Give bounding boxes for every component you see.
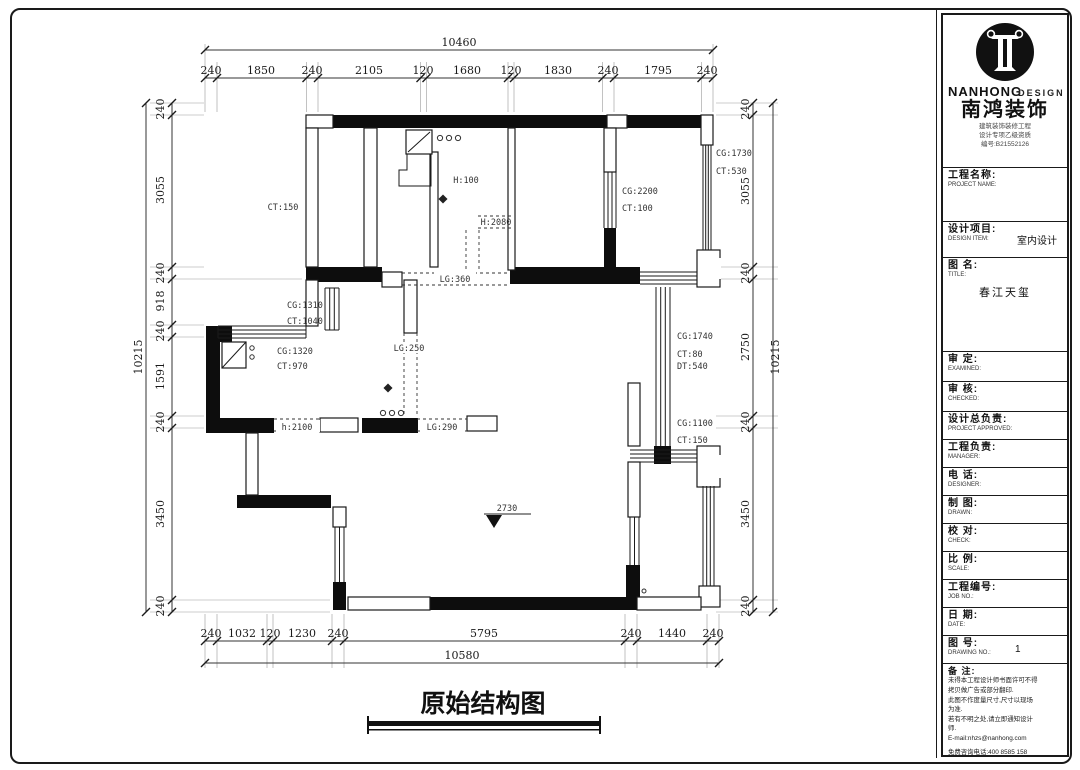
field-checked: 审 核: CHECKED: [943, 381, 1067, 411]
dim-left-seg: 3055 [154, 176, 167, 204]
dim-top-seg: 1830 [544, 64, 572, 77]
dim-right-seg: 240 [739, 596, 752, 617]
dims-left: 10215 240 3055 240 918 240 1591 240 3450… [132, 99, 167, 617]
dim-bottom-seg: 240 [201, 627, 222, 640]
dim-bottom-total: 10580 [445, 649, 480, 662]
dim-right-seg: 240 [739, 412, 752, 433]
dim-left-seg: 240 [154, 412, 167, 433]
label-lg360: LG:360 [440, 275, 471, 285]
drawing-sheet: 10460 240 1850 240 2105 120 1680 120 183… [0, 0, 1080, 770]
title-underline-thick [368, 721, 600, 726]
title-block: NANHONGDESIGN 南鸿装饰 建筑装饰装修工程 设计专项乙级资质 编号:… [941, 13, 1069, 757]
level-value: 2730 [497, 504, 517, 514]
map-title-value: 春江天玺 [943, 284, 1067, 300]
label-cg2200: CG:2200 [622, 187, 658, 197]
nanhong-logo-icon [974, 21, 1036, 83]
notes-line: 师. [948, 724, 1062, 734]
dim-top-seg: 120 [413, 64, 434, 77]
field-scale: 比 例: SCALE: [943, 551, 1067, 579]
field-label: 比 例: [948, 554, 1062, 566]
notes-line: 未得本工程设计师书面许可不得 [948, 676, 1062, 686]
field-sublabel: PROJECT APPROVED: [948, 426, 1062, 433]
field-label: 电 话: [948, 470, 1062, 482]
dim-left-seg: 1591 [154, 362, 167, 390]
dim-left-seg: 918 [154, 291, 167, 312]
dim-top-seg: 240 [697, 64, 718, 77]
dim-top-seg: 120 [501, 64, 522, 77]
dim-top-total: 10460 [442, 36, 477, 49]
dim-left-seg: 240 [154, 321, 167, 342]
cert-line-3: 编号:B21552126 [948, 141, 1062, 150]
notes-phone: 免费咨询电话:400 8585 158 [948, 748, 1062, 758]
drawing-title: 原始结构图 [420, 690, 545, 718]
label-ct1040: CT:1040 [287, 317, 323, 327]
notes-line: 拷贝做广告或部分翻印. [948, 686, 1062, 696]
dim-top-seg: 1795 [644, 64, 672, 77]
label-cg1100: CG:1100 [677, 419, 713, 429]
field-drawn: 制 图: DRAWN: [943, 495, 1067, 523]
dim-right-seg: 3055 [739, 177, 752, 205]
dim-bottom-seg: 120 [260, 627, 281, 640]
field-label: 设计总负责: [948, 414, 1062, 426]
label-h2080: H:2080 [481, 218, 512, 228]
field-label: 图 名: [948, 260, 1062, 272]
notes-line: 为准. [948, 705, 1062, 715]
cert-line-2: 设计专项乙级资质 [948, 132, 1062, 141]
label-lg250: LG:250 [394, 344, 425, 354]
label-cg1320: CG:1320 [277, 347, 313, 357]
dim-left-total: 10215 [132, 340, 145, 375]
dim-top-seg: 240 [201, 64, 222, 77]
dim-top-seg: 1680 [453, 64, 481, 77]
field-label: 制 图: [948, 498, 1062, 510]
dim-right-seg: 3450 [739, 500, 752, 528]
brand-en: NANHONG [948, 84, 1022, 99]
field-sublabel: PROJECT NAME: [948, 182, 1062, 189]
field-label: 工程编号: [948, 582, 1062, 594]
label-cg1740: CG:1740 [677, 332, 713, 342]
field-approved: 设计总负责: PROJECT APPROVED: [943, 411, 1067, 439]
field-sublabel: SCALE: [948, 566, 1062, 573]
dim-right-total: 10215 [769, 340, 782, 375]
field-sublabel: DESIGNER: [948, 482, 1062, 489]
field-label: 工程名称: [948, 170, 1062, 182]
drawing-title-group: 原始结构图 [368, 690, 600, 734]
label-ct150: CT:150 [268, 203, 299, 213]
field-phone: 电 话: DESIGNER: [943, 467, 1067, 495]
dim-left-seg: 3450 [154, 500, 167, 528]
dim-bottom-seg: 240 [703, 627, 724, 640]
label-ct100: CT:100 [622, 204, 653, 214]
floor-plan-canvas: 10460 240 1850 240 2105 120 1680 120 183… [0, 0, 935, 770]
design-item-value: 室内设计 [1017, 232, 1057, 247]
title-block-divider [936, 10, 937, 758]
field-sublabel: EXAMINED: [948, 366, 1062, 373]
dim-right-seg: 240 [739, 99, 752, 120]
dim-right-seg: 2750 [739, 333, 752, 361]
field-label: 日 期: [948, 610, 1062, 622]
label-dt540: DT:540 [677, 362, 708, 372]
field-examined: 审 定: EXAMINED: [943, 351, 1067, 381]
label-ct80: CT:80 [677, 350, 703, 360]
dim-top-seg: 240 [302, 64, 323, 77]
field-label: 校 对: [948, 526, 1062, 538]
company-logo-section: NANHONGDESIGN 南鸿装饰 建筑装饰装修工程 设计专项乙级资质 编号:… [943, 15, 1067, 167]
pillar-notches [713, 258, 721, 478]
notes-label: 备 注: [948, 666, 1062, 676]
field-manager: 工程负责: MANAGER: [943, 439, 1067, 467]
label-cg1310: CG:1310 [287, 301, 323, 311]
field-sublabel: DATE: [948, 622, 1062, 629]
field-sublabel: DRAWING NO.: [948, 650, 1062, 657]
brand-en-2: DESIGN [1018, 88, 1065, 98]
field-sublabel: MANAGER: [948, 454, 1062, 461]
field-drawing-no: 图 号: DRAWING NO.: 1 [943, 635, 1067, 663]
notes-line: 此图不作度量尺寸,尺寸以现场 [948, 696, 1062, 706]
dim-right-seg: 240 [739, 263, 752, 284]
brand-cn: 南鸿装饰 [948, 98, 1062, 123]
dim-bottom-seg: 1440 [658, 627, 686, 640]
dim-bottom-seg: 1230 [288, 627, 316, 640]
brand-en-line: NANHONGDESIGN [948, 85, 1062, 98]
field-map-title: 图 名: TITLE: 春江天玺 [943, 257, 1067, 351]
cert-line-1: 建筑装饰装修工程 [948, 123, 1062, 132]
field-sublabel: JOB NO.: [948, 594, 1062, 601]
field-label: 工程负责: [948, 442, 1062, 454]
dim-top-seg: 1850 [247, 64, 275, 77]
field-label: 图 号: [948, 638, 1062, 650]
dim-left-seg: 240 [154, 596, 167, 617]
notes-section: 备 注: 未得本工程设计师书面许可不得 拷贝做广告或部分翻印. 此图不作度量尺寸… [943, 663, 1067, 759]
dim-bottom-seg: 1032 [228, 627, 256, 640]
label-h2100: h:2100 [282, 423, 313, 433]
drawing-no-value: 1 [1015, 644, 1021, 655]
field-sublabel: CHECKED: [948, 396, 1062, 403]
field-label: 审 定: [948, 354, 1062, 366]
dim-top-seg: 2105 [355, 64, 383, 77]
dim-bottom-seg: 240 [328, 627, 349, 640]
level-marker: 2730 [484, 504, 531, 528]
field-project-name: 工程名称: PROJECT NAME: [943, 167, 1067, 221]
dim-left-seg: 240 [154, 99, 167, 120]
shaft-outline [222, 132, 432, 368]
field-label: 审 核: [948, 384, 1062, 396]
field-sublabel: DRAWN: [948, 510, 1062, 517]
dim-bottom-seg: 5795 [470, 627, 498, 640]
label-cg1730: CG:1730 [716, 149, 752, 159]
dim-top-seg: 240 [598, 64, 619, 77]
label-ct530: CT:530 [716, 167, 747, 177]
title-underline-thin [368, 729, 600, 731]
dim-bottom-seg: 240 [621, 627, 642, 640]
label-ct970: CT:970 [277, 362, 308, 372]
field-job-no: 工程编号: JOB NO.: [943, 579, 1067, 607]
field-design-item: 设计项目: DESIGN ITEM: 室内设计 [943, 221, 1067, 257]
dim-left-seg: 240 [154, 263, 167, 284]
dims-top: 10460 240 1850 240 2105 120 1680 120 183… [201, 36, 718, 77]
dims-bottom: 10580 240 1032 120 1230 240 5795 240 144… [201, 627, 724, 662]
field-date: 日 期: DATE: [943, 607, 1067, 635]
field-sublabel: CHECK: [948, 538, 1062, 545]
notes-line: 若有不明之处,请立即通知设计 [948, 715, 1062, 725]
label-h100: H:100 [453, 176, 479, 186]
label-ct150b: CT:150 [677, 436, 708, 446]
field-sublabel: TITLE: [948, 272, 1062, 279]
notes-line: E-mail:nhzs@nanhong.com [948, 734, 1062, 744]
field-check: 校 对: CHECK: [943, 523, 1067, 551]
label-lg290: LG:290 [427, 423, 458, 433]
